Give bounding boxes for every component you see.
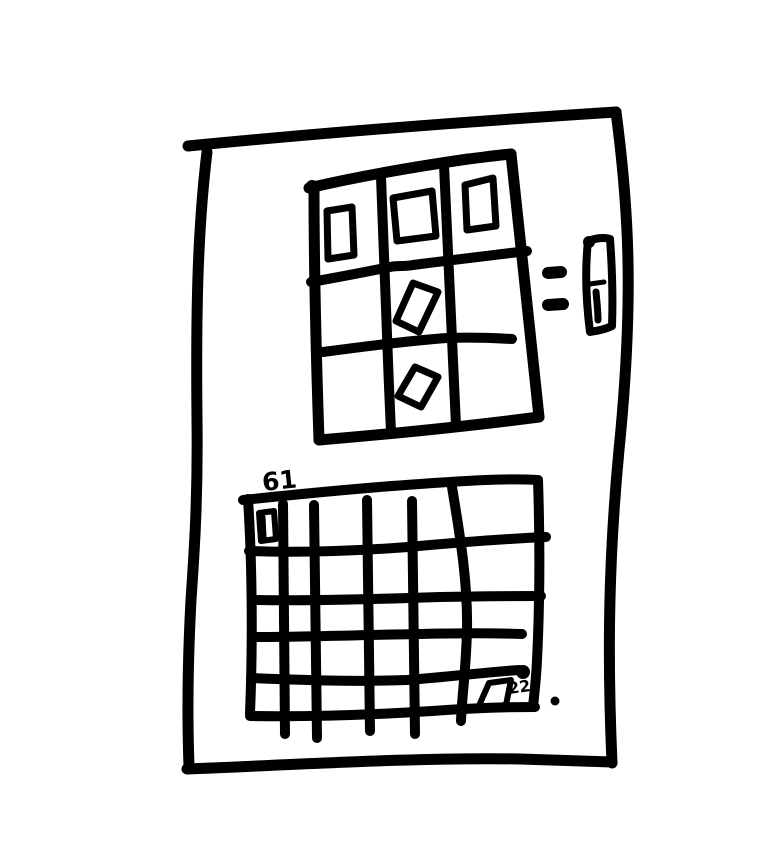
calendar-selected-cell-inner-bar <box>263 517 264 537</box>
photo-grid <box>306 154 539 440</box>
photo-placeholder-3 <box>465 178 496 230</box>
calendar-event-label: 22 <box>507 676 532 698</box>
photo-grid-row-divider-2 <box>323 338 512 352</box>
calendar-corner-label: 61 <box>261 464 299 496</box>
photo-grid-column-divider-2 <box>444 165 456 426</box>
side-controls <box>548 236 612 332</box>
calendar-column-line-2 <box>314 505 317 738</box>
pen-start-blob <box>306 180 318 192</box>
scrollbar <box>583 236 612 332</box>
calendar-column-line-4 <box>412 501 415 734</box>
frame-right-edge <box>609 112 628 763</box>
sketch-canvas: 61 22 <box>0 0 768 860</box>
scrollbar-pen-blob <box>583 236 595 248</box>
photo-placeholder-5-tilted <box>398 367 438 407</box>
calendar-row-line-4 <box>251 670 519 681</box>
calendar-row-line-1 <box>249 537 546 552</box>
calendar-event-marker-tilted <box>478 680 511 708</box>
calendar-column-line-5 <box>452 487 467 721</box>
calendar-grid: 61 22 <box>243 464 560 738</box>
frame-bottom-edge <box>187 759 612 769</box>
wireframe-sketch-drawing: 61 22 <box>0 0 768 860</box>
menu-dash-1 <box>548 272 561 273</box>
frame-top-edge <box>188 112 616 146</box>
stray-dot <box>551 697 560 706</box>
calendar-row-line-3 <box>257 633 522 637</box>
photo-grid-left-edge <box>314 186 319 440</box>
menu-dash-2 <box>548 304 563 305</box>
photo-grid-column-divider-1 <box>381 177 391 432</box>
frame-left-edge <box>188 152 207 766</box>
photo-placeholder-2 <box>393 191 436 241</box>
calendar-column-line-3 <box>367 500 370 731</box>
photo-placeholder-4-tilted <box>396 283 438 332</box>
scrollbar-thumb <box>596 292 598 320</box>
photo-placeholder-1 <box>327 207 354 259</box>
photo-grid-bottom-edge <box>319 417 539 440</box>
calendar-column-line-1 <box>283 504 285 734</box>
scrollbar-divider <box>590 282 604 284</box>
calendar-row-line-2 <box>257 596 541 600</box>
photo-grid-right-edge <box>511 154 539 417</box>
